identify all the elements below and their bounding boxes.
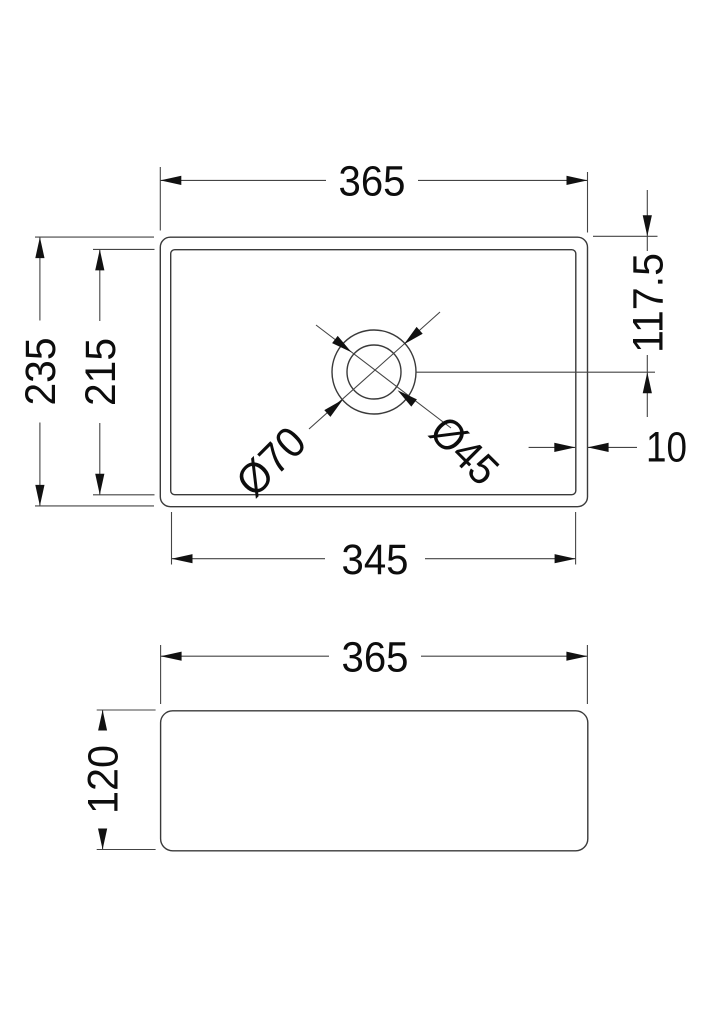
svg-text:120: 120 [80,745,128,814]
svg-text:10: 10 [646,423,687,471]
svg-text:235: 235 [17,338,65,406]
svg-text:117.5: 117.5 [624,253,672,353]
svg-text:215: 215 [77,338,125,406]
svg-text:365: 365 [339,158,406,206]
svg-text:345: 345 [342,536,409,584]
svg-text:365: 365 [342,633,409,681]
